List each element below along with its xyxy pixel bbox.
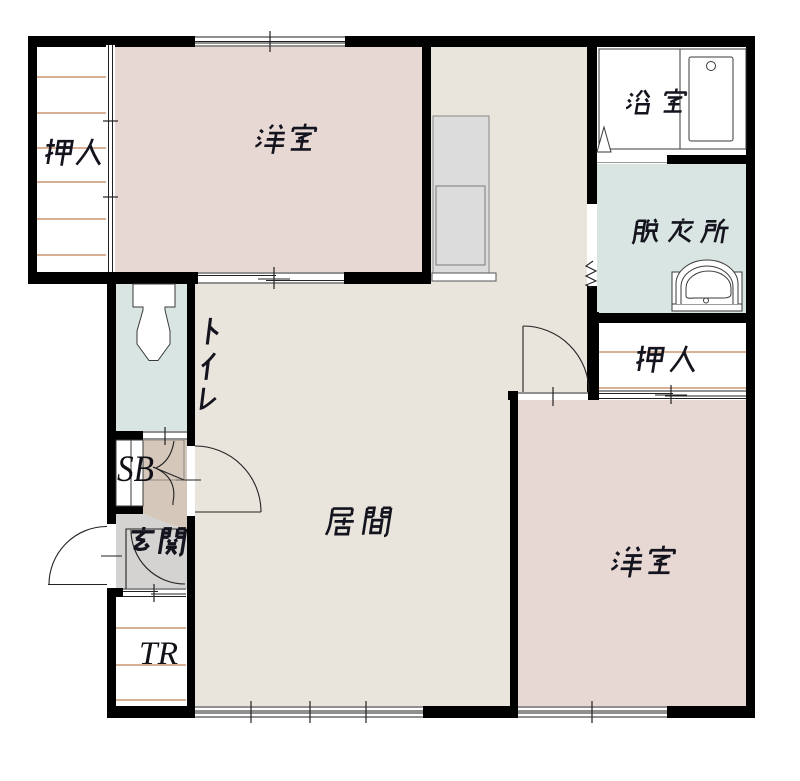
svg-text:SB: SB [117, 449, 154, 490]
svg-text:TR: TR [139, 636, 178, 672]
